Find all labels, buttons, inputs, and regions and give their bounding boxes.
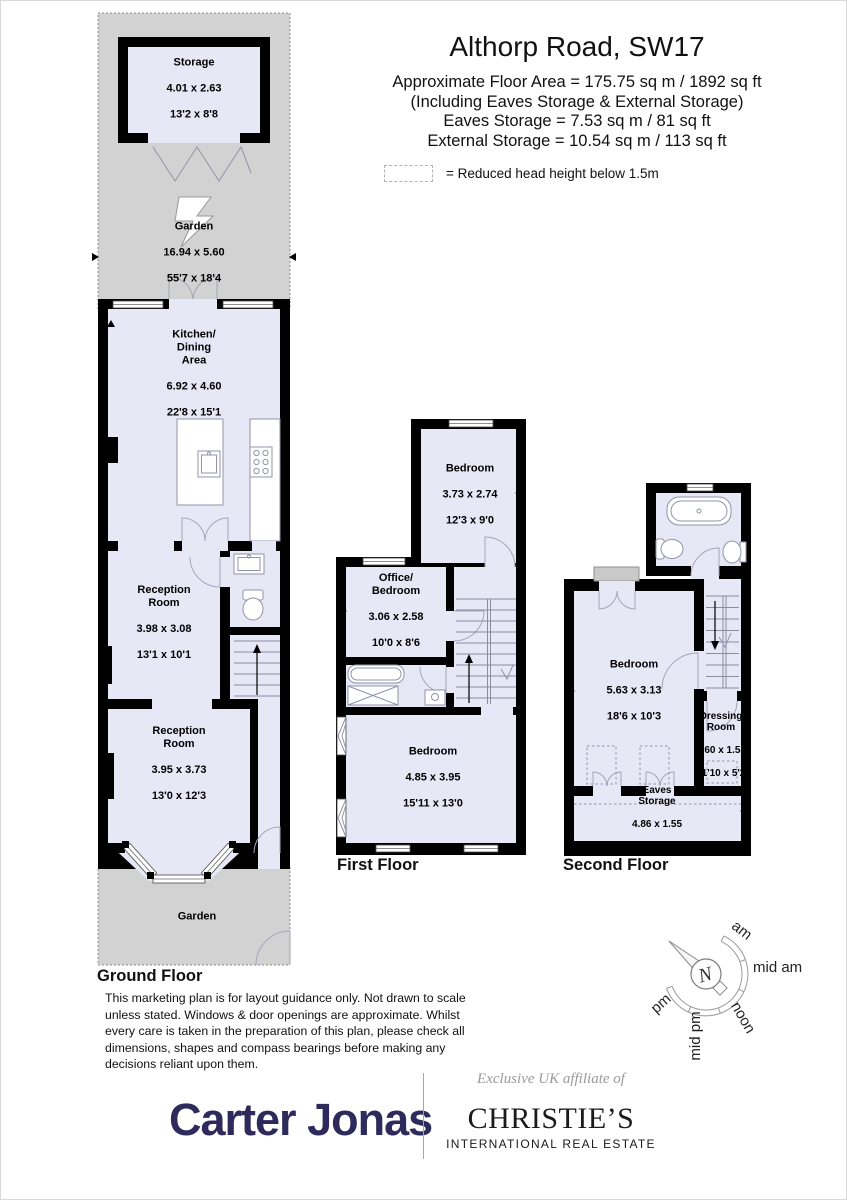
room-label-front-garden: Garden bbox=[178, 898, 217, 937]
shower-icon bbox=[348, 686, 398, 705]
room-dim-imperial: 10'0 x 8'6 bbox=[368, 637, 423, 650]
external-storage-line: External Storage = 10.54 sq m / 113 sq f… bbox=[381, 132, 773, 152]
first-floor-label: First Floor bbox=[337, 856, 419, 875]
reduced-head-height-swatch bbox=[384, 165, 433, 182]
header: Althorp Road, SW17 Approximate Floor Are… bbox=[381, 31, 773, 182]
room-dim-imperial: 12'3 x 9'0 bbox=[442, 515, 497, 528]
wall-segment bbox=[230, 627, 280, 635]
christies-subtitle: INTERNATIONAL REAL ESTATE bbox=[444, 1137, 658, 1151]
compass-mid-am-label: mid am bbox=[753, 959, 802, 976]
room-name: Reception Room bbox=[136, 584, 191, 610]
chevron-window bbox=[337, 717, 346, 755]
compass-noon-label: noon bbox=[727, 999, 758, 1036]
cloakroom-sink-icon bbox=[234, 554, 264, 574]
room-dim-imperial: 15'11 x 5'1 bbox=[632, 842, 682, 854]
room-name: Kitchen/ Dining Area bbox=[166, 329, 221, 368]
room-dim-imperial: 13'0 x 12'3 bbox=[151, 790, 206, 803]
room-label-storage: Storage 4.01 x 2.63 13'2 x 8'8 bbox=[166, 44, 221, 135]
room-name: Dressing Room bbox=[696, 711, 746, 734]
landing-floor bbox=[454, 567, 516, 707]
reception-1-door-opening bbox=[220, 557, 230, 587]
chimney-breast bbox=[98, 753, 114, 799]
room-dim-imperial: 13'1 x 10'1 bbox=[136, 649, 191, 662]
bathroom-door-opening bbox=[446, 667, 454, 693]
bathroom2-window bbox=[687, 484, 713, 491]
room-label-office-bedroom: Office/ Bedroom 3.06 x 2.58 10'0 x 8'6 bbox=[368, 559, 423, 663]
compass-mid-pm-label: mid pm bbox=[687, 1011, 704, 1060]
compass-am-label: am bbox=[728, 917, 755, 943]
room-dim-imperial: 22'8 x 15'1 bbox=[166, 407, 221, 420]
bedroom-rear-window bbox=[449, 420, 493, 427]
room-dim-metric: 3.98 x 3.08 bbox=[136, 623, 191, 636]
sink-icon bbox=[723, 541, 746, 563]
room-dim-metric: 3.73 x 2.74 bbox=[442, 489, 497, 502]
chimney-breast bbox=[98, 646, 112, 684]
room-name: Office/ Bedroom bbox=[368, 572, 423, 598]
bedroom2-window-opening bbox=[599, 581, 635, 591]
bathtub-icon bbox=[348, 665, 404, 683]
room-name: Bedroom bbox=[442, 463, 497, 476]
room-label-rear-garden: Garden 16.94 x 5.60 55'7 x 18'4 bbox=[163, 208, 224, 299]
room-dim-metric: 6.92 x 4.60 bbox=[166, 381, 221, 394]
room-name: Reception Room bbox=[151, 725, 206, 751]
carter-jonas-logo: Carter Jonas bbox=[169, 1094, 432, 1146]
ground-floor-label: Ground Floor bbox=[97, 967, 202, 986]
office-door-opening bbox=[446, 611, 454, 641]
bedroom2-door-opening bbox=[694, 651, 704, 689]
sink-icon bbox=[425, 690, 445, 705]
room-dim-metric: 4.01 x 2.63 bbox=[166, 83, 221, 96]
floorplan-page: Althorp Road, SW17 Approximate Floor Are… bbox=[0, 0, 847, 1200]
compass: N am mid am noon mid pm pm bbox=[648, 917, 803, 1060]
dormer-window bbox=[594, 567, 639, 581]
disclaimer-text: This marketing plan is for layout guidan… bbox=[105, 990, 489, 1073]
bathroom2-door-opening bbox=[691, 566, 719, 579]
front-door-opening bbox=[258, 859, 280, 869]
room-label-reception-2: Reception Room 3.95 x 3.73 13'0 x 12'3 bbox=[151, 712, 206, 816]
room-dim-metric: 5.63 x 3.13 bbox=[606, 685, 661, 698]
room-label-eaves-storage: Eaves Storage 4.86 x 1.55 15'11 x 5'1 bbox=[632, 773, 682, 865]
reception-opening bbox=[152, 699, 212, 709]
toilet-icon bbox=[243, 590, 263, 620]
hob-icon bbox=[250, 447, 272, 477]
room-label-bedroom-second: Bedroom 5.63 x 3.13 18'6 x 10'3 bbox=[606, 646, 661, 737]
kitchen-counter bbox=[250, 419, 280, 541]
room-dim-metric: 4.85 x 3.95 bbox=[403, 772, 463, 785]
christies-logo-block: Exclusive UK affiliate of CHRISTIE’S INT… bbox=[444, 1071, 658, 1151]
room-name: Storage bbox=[166, 57, 221, 70]
room-dim-imperial: 18'6 x 10'3 bbox=[606, 711, 661, 724]
room-name: Garden bbox=[163, 221, 224, 234]
second-floor-label: Second Floor bbox=[563, 856, 668, 875]
room-dim-imperial: 15'11 x 13'0 bbox=[403, 798, 463, 811]
room-name: Bedroom bbox=[403, 746, 463, 759]
bedroom-front-door-opening bbox=[481, 707, 513, 715]
affiliate-note: Exclusive UK affiliate of bbox=[444, 1071, 658, 1088]
room-dim-metric: 3.60 x 1.58 bbox=[696, 745, 746, 757]
bathtub-icon bbox=[667, 497, 731, 525]
ground-floor-plan bbox=[92, 13, 296, 965]
room-label-kitchen: Kitchen/ Dining Area 6.92 x 4.60 22'8 x … bbox=[166, 316, 221, 433]
room-label-bedroom-front: Bedroom 4.85 x 3.95 15'11 x 13'0 bbox=[403, 733, 463, 824]
room-dim-metric: 16.94 x 5.60 bbox=[163, 247, 224, 260]
room-name: Bedroom bbox=[606, 659, 661, 672]
legend-row: = Reduced head height below 1.5m bbox=[381, 165, 773, 182]
eaves-storage-line: Eaves Storage = 7.53 sq m / 81 sq ft bbox=[381, 112, 773, 132]
room-label-dressing-room: Dressing Room 3.60 x 1.58 11'10 x 5'2 bbox=[696, 699, 746, 791]
rear-door-opening bbox=[169, 299, 217, 309]
entrance-hall-floor bbox=[258, 709, 280, 859]
floor-area-line: Approximate Floor Area = 175.75 sq m / 1… bbox=[381, 73, 773, 93]
room-dim-imperial: 55'7 x 18'4 bbox=[163, 273, 224, 286]
room-dim-imperial: 13'2 x 8'8 bbox=[166, 109, 221, 122]
room-name: Eaves Storage bbox=[632, 785, 682, 808]
room-label-bedroom-rear: Bedroom 3.73 x 2.74 12'3 x 9'0 bbox=[442, 450, 497, 541]
chimney-breast bbox=[98, 437, 118, 463]
christies-wordmark: CHRISTIE’S bbox=[444, 1102, 658, 1136]
room-dim-metric: 3.95 x 3.73 bbox=[151, 764, 206, 777]
hall-opening bbox=[258, 699, 280, 709]
including-line: (Including Eaves Storage & External Stor… bbox=[381, 93, 773, 113]
footer-divider bbox=[423, 1073, 424, 1159]
room-name: Garden bbox=[178, 911, 217, 924]
legend-text: = Reduced head height below 1.5m bbox=[446, 166, 659, 181]
sink-icon bbox=[198, 451, 220, 477]
toilet-icon bbox=[656, 539, 683, 559]
chevron-window bbox=[337, 799, 346, 837]
room-dim-metric: 4.86 x 1.55 bbox=[632, 819, 682, 831]
compass-pm-label: pm bbox=[648, 990, 675, 1017]
room-dim-imperial: 11'10 x 5'2 bbox=[696, 768, 746, 780]
room-label-reception-1: Reception Room 3.98 x 3.08 13'1 x 10'1 bbox=[136, 571, 191, 675]
page-title: Althorp Road, SW17 bbox=[381, 31, 773, 63]
room-dim-metric: 3.06 x 2.58 bbox=[368, 611, 423, 624]
